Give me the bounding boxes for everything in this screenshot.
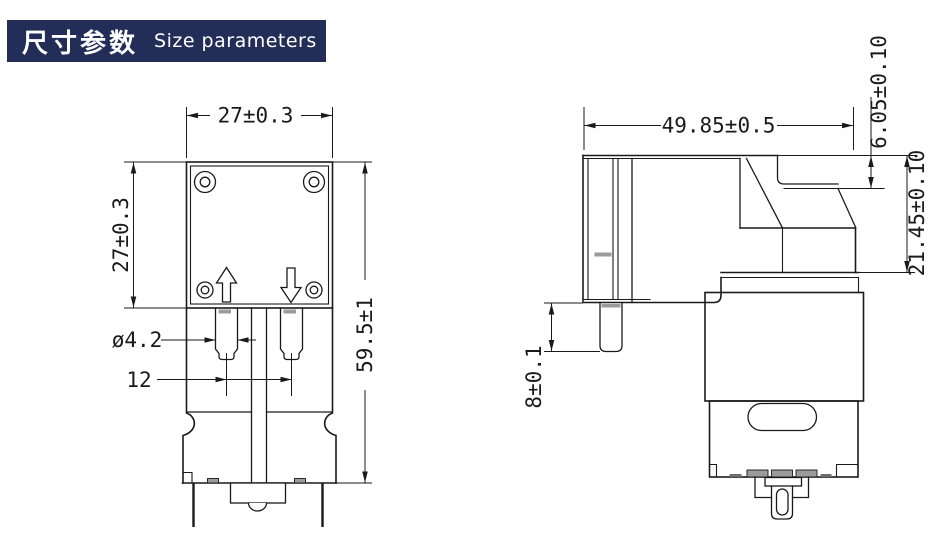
dim-front-port-diameter: ø4.2 — [112, 328, 256, 352]
dimension-drawing: 27±0.3 27±0.3 59.5±1 — [0, 0, 951, 545]
front-connector — [194, 483, 323, 527]
dim-text-head-width: 27±0.3 — [218, 104, 294, 128]
dim-text-top-step: 6.05±0.10 — [867, 35, 891, 149]
outlet-arrow-icon — [217, 268, 237, 303]
page: 尺寸参数 Size parameters — [0, 0, 951, 545]
dim-side-port-length: 8±0.1 — [522, 303, 600, 409]
side-bracket-chamfer — [740, 156, 915, 273]
dim-front-head-height: 27±0.3 — [109, 162, 187, 308]
dim-text-head-height: 27±0.3 — [109, 197, 133, 273]
dim-text-port-diameter: ø4.2 — [112, 328, 163, 352]
dim-text-overall-height: 59.5±1 — [353, 297, 377, 373]
dim-front-head-width: 27±0.3 — [187, 104, 333, 159]
front-view: 27±0.3 27±0.3 59.5±1 — [109, 104, 377, 528]
dim-text-port-length: 8±0.1 — [522, 345, 546, 408]
side-view: 49.85±0.5 6.05±0.10 21.45±0.10 — [522, 35, 929, 519]
side-head — [583, 156, 778, 303]
side-port — [600, 303, 622, 352]
screw-holes — [195, 172, 325, 299]
side-ledge — [721, 273, 859, 293]
dim-side-top-step: 6.05±0.10 — [867, 35, 891, 188]
dim-side-bracket-height: 21.45±0.10 — [859, 150, 930, 276]
inlet-arrow-icon — [281, 268, 301, 303]
front-lower-body — [183, 308, 337, 483]
dim-text-bracket-height: 21.45±0.10 — [905, 150, 929, 276]
front-ports — [216, 308, 303, 360]
dim-text-port-spacing: 12 — [126, 368, 151, 392]
dim-text-overall-width: 49.85±0.5 — [662, 114, 776, 138]
side-motor — [705, 293, 864, 478]
dim-side-overall-width: 49.85±0.5 — [584, 107, 854, 150]
side-connector — [755, 477, 809, 519]
dim-front-overall-height: 59.5±1 — [333, 162, 378, 483]
